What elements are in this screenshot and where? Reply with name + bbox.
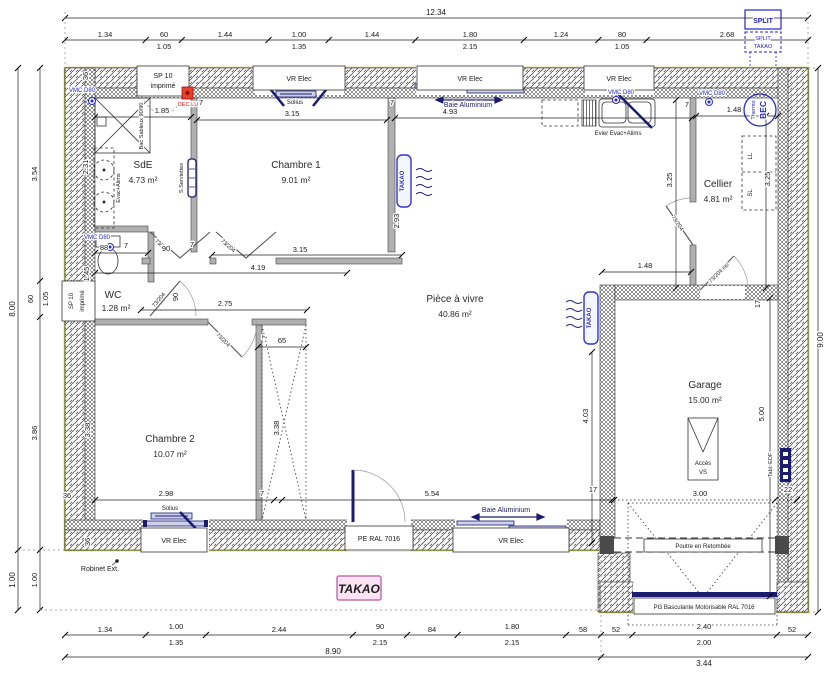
dim-wall7-a: 7	[199, 98, 203, 107]
window-sp10-left-label2: imprimé	[80, 290, 86, 312]
dim-ch2-width: 2.98	[159, 489, 174, 498]
garage-door-panel	[632, 592, 777, 597]
dim-bot-0: 1.34	[98, 625, 113, 634]
dim-top-3b: 1.35	[292, 42, 307, 51]
acces-vs-label2: VS	[699, 470, 707, 476]
dim-wc-height: 1.45	[82, 267, 91, 282]
dim-top-5a: 1.80	[463, 30, 478, 39]
dim-top-5b: 2.15	[463, 42, 478, 51]
dim-top-total: 12.34	[426, 8, 447, 17]
dim-top-4: 1.44	[365, 30, 380, 39]
dim-closet-width: 65	[278, 336, 286, 345]
dim-bot-2: 2.44	[272, 625, 287, 634]
acces-vs-label1: Accès	[695, 461, 711, 467]
dim-top-0: 1.34	[98, 30, 113, 39]
room-sde-name: SdE	[134, 160, 153, 171]
dim-ch1-bottom: 3.15	[293, 245, 308, 254]
split-label: SPLIT	[753, 18, 774, 25]
vmc-label-kitchen: VMC D80	[608, 90, 635, 96]
towel-radiator	[188, 159, 196, 197]
takao-stamp: TAKAO	[337, 576, 381, 600]
dim-bot-6: 58	[579, 625, 587, 634]
dim-wall7-f: 7	[260, 335, 269, 339]
dim-top-2: 1.44	[218, 30, 233, 39]
dim-top-1a: 60	[160, 30, 168, 39]
room-ch1-area: 9.01 m²	[282, 175, 311, 185]
dim-wall7-e: 7	[190, 240, 194, 249]
takao-stamp-text: TAKAO	[338, 582, 380, 596]
dim-wc-width: 88	[100, 243, 108, 252]
garage-door-label: PG Basculante Motorisable RAL 7016	[654, 605, 755, 611]
dim-garage-height: 5.00	[757, 407, 766, 422]
dim-sejour-side: 4.03	[581, 409, 590, 424]
window-vr-elec-3: VR Elec	[606, 76, 632, 83]
dim-bot-total-house: 8.90	[325, 647, 341, 656]
dim-left-1b: 1.05	[41, 292, 50, 307]
dim-wall7-g: 7	[260, 489, 264, 498]
dim-wall22: 22	[784, 485, 792, 494]
dim-garage-width: 3.00	[693, 489, 708, 498]
vmc-label-cellier: VMC D80	[699, 91, 726, 97]
dim-sde-width: 1.85	[155, 106, 170, 115]
dim-hall2: 2.75	[218, 299, 233, 308]
dim-wall7-d: 7	[124, 241, 128, 250]
dim-left-2: 3.86	[30, 426, 39, 441]
window-sp10-left-label1: SP 10	[69, 292, 75, 309]
vmc-label-wc: VMC D80	[84, 235, 111, 241]
dim-wall17-a: 17	[589, 485, 597, 494]
room-wc-area: 1.28 m²	[102, 303, 131, 313]
dim-left-total: 8.00	[8, 301, 17, 317]
dim-top-6: 1.24	[554, 30, 569, 39]
room-cellier-area: 4.81 m²	[704, 194, 733, 204]
room-ch2-name: Chambre 2	[145, 434, 195, 445]
seche-linge-label: SL	[748, 189, 754, 197]
entry-door-label: PE RAL 7016	[358, 536, 400, 543]
room-garage-area: 15.00 m²	[688, 395, 722, 405]
split-takao-label2: TAKAO	[754, 44, 773, 50]
bec-thermo-label: Thermo	[751, 100, 757, 119]
dim-left-3: 1.00	[30, 573, 39, 588]
beam-label: Poutre en Retombée	[675, 544, 731, 550]
radiator-solius-top	[276, 91, 316, 97]
dim-bot-8a: 2.40	[697, 622, 712, 631]
robinet-ext-label: Robinet Ext.	[81, 566, 119, 573]
room-cellier-name: Cellier	[704, 179, 733, 190]
dec-label: DEC.LU	[178, 102, 199, 108]
dim-cellier-h2: 3.25	[763, 172, 772, 187]
dim-wall17-b: 17	[753, 300, 762, 308]
window-vr-elec-4: VR Elec	[161, 538, 187, 545]
dim-ch1-width: 3.15	[285, 109, 300, 118]
room-wc-name: WC	[105, 290, 122, 301]
dim-ch1-side: 2.93	[392, 214, 401, 229]
dim-bot-total-garage: 3.44	[696, 659, 712, 668]
takao-radiator-1-label: TAKAO	[400, 170, 406, 191]
dim-bot-4: 84	[428, 625, 436, 634]
dim-wall36-a: 36	[81, 72, 90, 80]
dim-hall: 4.19	[251, 263, 266, 272]
room-ch1-name: Chambre 1	[271, 160, 321, 171]
bec-label: BEC	[758, 101, 768, 119]
seche-serviettes-label: S.Serviettes	[179, 163, 185, 193]
takao-radiator-2-label: TAKAO	[587, 307, 593, 328]
dec-marker	[182, 87, 193, 99]
dim-bot-5b: 2.15	[505, 638, 520, 647]
window-sp10-top-label2: imprimé	[151, 83, 176, 90]
window-vr-elec-5: VR Elec	[498, 538, 524, 545]
window-vr-elec-2: VR Elec	[457, 76, 483, 83]
window-vr-elec-1: VR Elec	[286, 76, 312, 83]
room-sejour-area: 40.86 m²	[438, 309, 472, 319]
dim-top-8: 2.68	[720, 30, 735, 39]
dim-left-0: 3.54	[30, 167, 39, 182]
dim-bot-1a: 1.00	[169, 622, 184, 631]
room-sejour-name: Pièce à vivre	[426, 294, 484, 305]
dim-left-1a: 60	[26, 295, 35, 303]
dim-sejour-width: 4.93	[443, 107, 458, 116]
dim-bot-7: 52	[612, 625, 620, 634]
dim-wall7-c: 7	[685, 100, 689, 109]
dim-cellier-h1: 3.25	[665, 173, 674, 188]
room-garage-name: Garage	[688, 380, 722, 391]
dim-wc-door: 90	[171, 293, 180, 301]
lave-linge-label: LL	[748, 152, 754, 159]
dim-cellier-low: 1.48	[638, 261, 653, 270]
dim-door90: 90	[162, 244, 170, 253]
dim-right-total: 9.00	[816, 332, 825, 348]
evier-label: Evier Evac+Alims	[595, 131, 642, 137]
solius-bottom-label: Solius	[162, 506, 178, 512]
vmc-label-sde: VMC D80	[69, 88, 96, 94]
solius-top-label: Solius	[287, 100, 303, 106]
dim-left-total-low: 1.00	[8, 572, 17, 588]
floor-plan-drawing: SdE 4.73 m² Chambre 1 9.01 m² WC 1.28 m²…	[0, 0, 833, 682]
dim-wall36-c: 36	[83, 538, 92, 546]
dim-bot-5a: 1.80	[505, 622, 520, 631]
dim-bot-9: 52	[788, 625, 796, 634]
dim-top-1b: 1.05	[157, 42, 172, 51]
tabl-edf-label: Tabl. EDF	[768, 452, 774, 477]
window-sp10-top-label1: SP 10	[154, 73, 173, 80]
split-takao-label1: SPLIT	[755, 36, 771, 42]
dim-top-3a: 1.00	[292, 30, 307, 39]
shower-tray-label: Bac Sableux 90/90	[139, 103, 145, 150]
dim-ch2-height: 3.38	[83, 423, 92, 438]
dim-top-7b: 1.05	[615, 42, 630, 51]
room-ch2-area: 10.07 m²	[153, 449, 187, 459]
dim-closet-height: 3.38	[272, 421, 281, 436]
floor-plan-canvas: SdE 4.73 m² Chambre 1 9.01 m² WC 1.28 m²…	[0, 0, 833, 682]
dim-bot-8b: 2.00	[697, 638, 712, 647]
dim-vasque: 2.31	[81, 160, 90, 175]
dim-sejour-bottom: 5.54	[425, 489, 440, 498]
evac-alims-label: Evac+Alims	[116, 173, 122, 203]
dim-top-7a: 80	[618, 30, 626, 39]
dim-bot-3a: 90	[376, 622, 384, 631]
dim-bot-3b: 2.15	[373, 638, 388, 647]
tableau-edf	[780, 448, 791, 482]
baie-aluminium-bottom-label: Baie Aluminium	[482, 507, 530, 514]
dim-wall36-b: 36	[63, 491, 71, 500]
room-sde-area: 4.73 m²	[129, 175, 158, 185]
dim-bot-1b: 1.35	[169, 638, 184, 647]
dim-wall7-b: 7	[390, 98, 394, 107]
dim-cellier-top: 1.48	[727, 105, 742, 114]
